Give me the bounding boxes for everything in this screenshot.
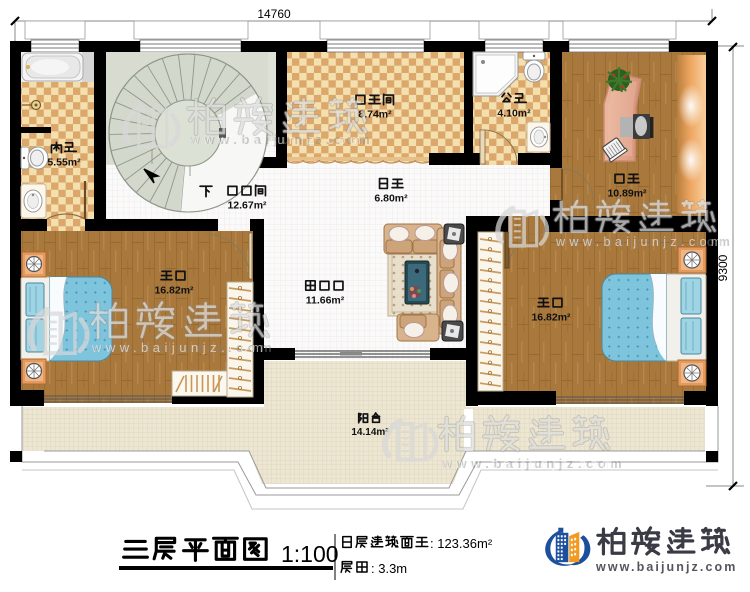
svg-text:www.baijunjz.com: www.baijunjz.com bbox=[555, 235, 726, 249]
svg-text:5.55m²: 5.55m² bbox=[47, 157, 81, 169]
svg-text:: 123.36m²: : 123.36m² bbox=[430, 536, 493, 551]
svg-text:www.baijunjz.com: www.baijunjz.com bbox=[595, 560, 737, 574]
svg-text:www.baijunjz.com: www.baijunjz.com bbox=[91, 340, 267, 355]
svg-text:10.89m²: 10.89m² bbox=[607, 188, 647, 200]
svg-text:14.14m²: 14.14m² bbox=[351, 427, 389, 438]
svg-text:www.baijunjz.com: www.baijunjz.com bbox=[189, 132, 365, 147]
svg-text:16.82m²: 16.82m² bbox=[531, 312, 571, 324]
svg-text:12.67m²: 12.67m² bbox=[227, 200, 267, 212]
svg-text:1:100: 1:100 bbox=[281, 541, 339, 567]
svg-text:14760: 14760 bbox=[257, 7, 291, 21]
svg-text:9300: 9300 bbox=[716, 254, 730, 281]
svg-text:16.82m²: 16.82m² bbox=[154, 285, 194, 297]
svg-text:: 3.3m: : 3.3m bbox=[371, 561, 407, 576]
svg-text:www.baijunjz.com: www.baijunjz.com bbox=[441, 456, 617, 471]
svg-text:11.66m²: 11.66m² bbox=[306, 295, 345, 307]
svg-text:6.80m²: 6.80m² bbox=[374, 193, 408, 205]
svg-text:4.10m²: 4.10m² bbox=[497, 108, 531, 120]
